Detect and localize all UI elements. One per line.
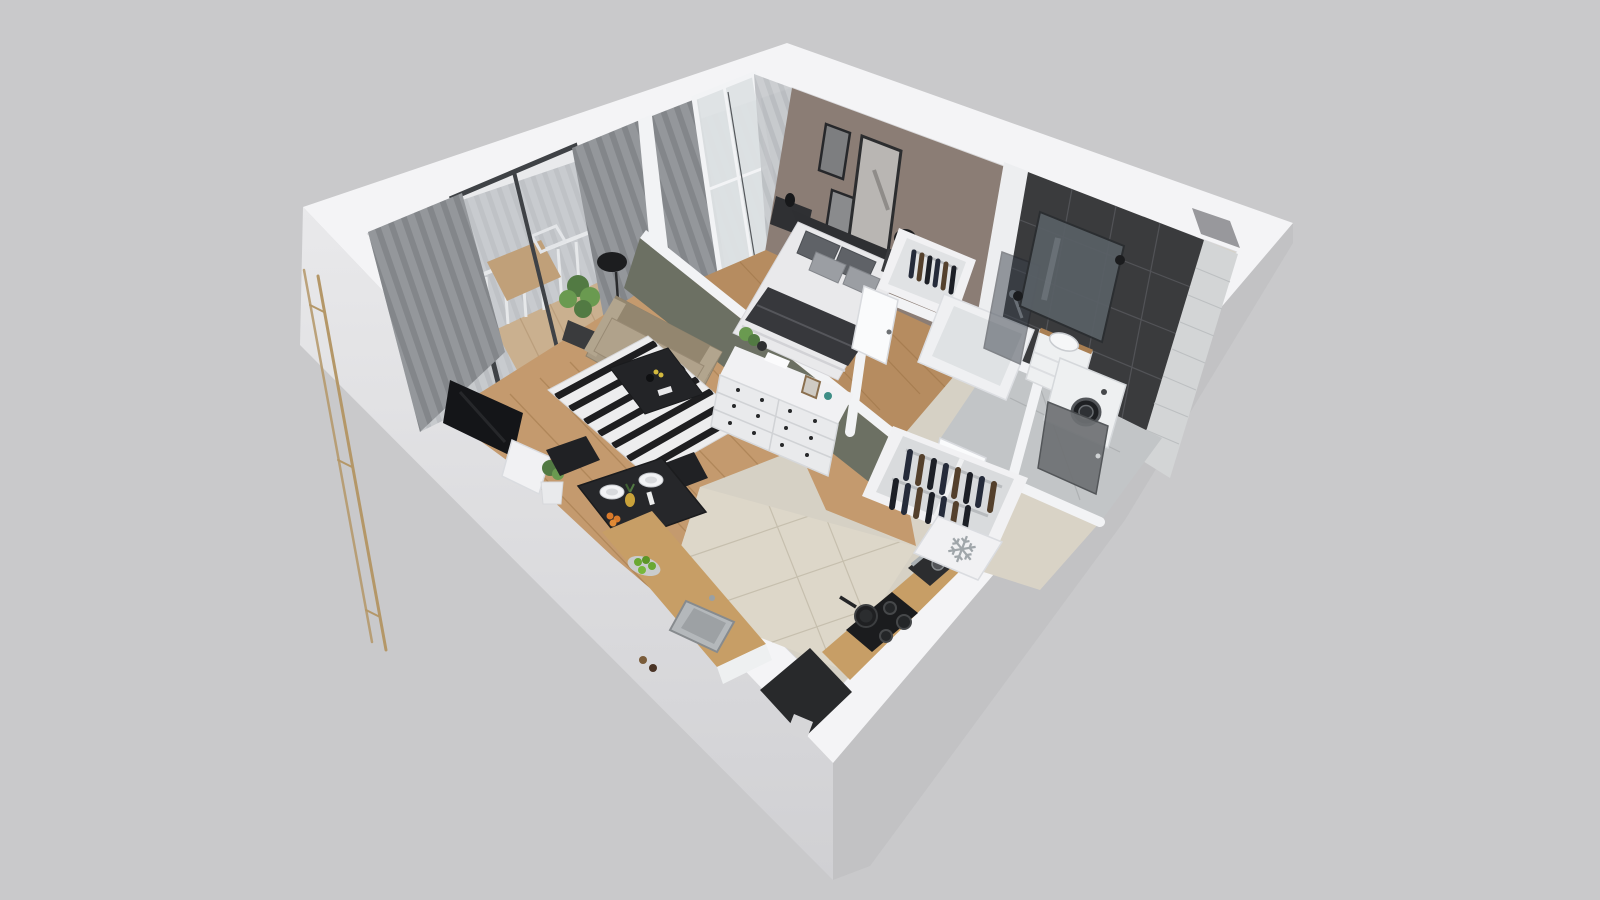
floorplan-stage: ❄ bbox=[0, 0, 1600, 900]
washer-dial bbox=[1101, 389, 1107, 395]
wall-sconce bbox=[1013, 291, 1023, 301]
spice-grinder bbox=[649, 664, 657, 672]
bottle-decor bbox=[785, 193, 795, 207]
apartment-3d-floorplan: ❄ bbox=[0, 0, 1600, 900]
orange bbox=[610, 520, 617, 527]
spice-grinder bbox=[639, 656, 647, 664]
door-handle bbox=[887, 330, 892, 335]
wall-art-small-1 bbox=[819, 124, 850, 179]
vase bbox=[646, 374, 654, 382]
door-handle bbox=[1096, 454, 1101, 459]
bowl bbox=[757, 341, 767, 351]
teal-vase bbox=[824, 392, 832, 400]
wall-sconce bbox=[1115, 255, 1125, 265]
orange bbox=[607, 513, 614, 520]
faucet bbox=[709, 595, 715, 601]
